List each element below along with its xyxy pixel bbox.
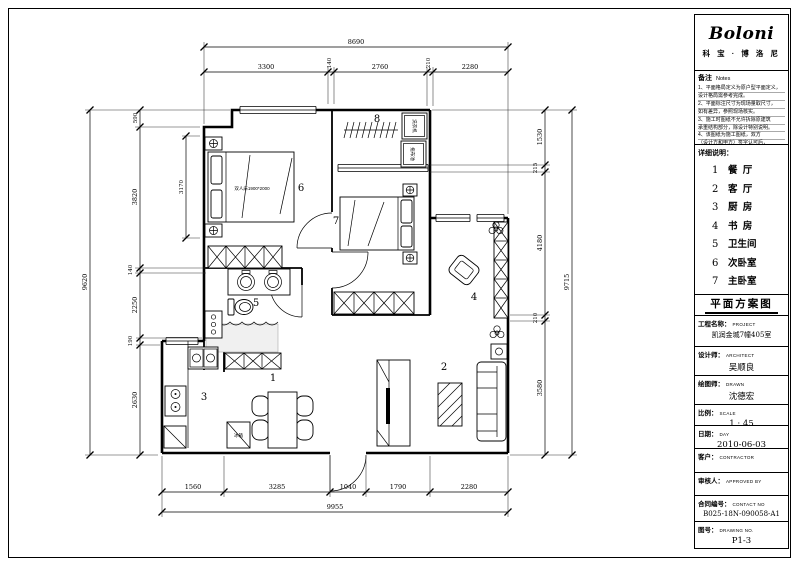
room-num-dining: 1 <box>270 373 276 384</box>
svg-text:3820: 3820 <box>131 189 139 206</box>
svg-text:4180: 4180 <box>536 235 544 252</box>
boloni-logo-chinese: 科 宝 · 博 洛 尼 <box>698 48 785 59</box>
note-line: 设计格局需参考完成。 <box>698 93 785 101</box>
scale-value: 1 : 45 <box>698 419 785 426</box>
legend-item: 7主卧室 <box>712 273 785 287</box>
contract-field: 合同编号：CONTACT NO B025-18N-090058-A1 <box>695 496 788 522</box>
room-num-bedroom1: 7 <box>333 216 339 227</box>
svg-text:2280: 2280 <box>461 483 478 491</box>
balcony-furniture: 洗衣机 拖布池 <box>344 113 427 167</box>
dining-furniture <box>252 392 313 448</box>
svg-text:590: 590 <box>133 112 139 123</box>
legend-item: 2客 厅 <box>712 181 785 195</box>
room-num-living: 2 <box>441 362 447 373</box>
room-num-bath: 5 <box>253 298 259 309</box>
dim-inner: 3170 <box>179 180 185 194</box>
legend-item: 4书 房 <box>712 218 785 232</box>
svg-text:1790: 1790 <box>390 483 407 491</box>
architect-field: 设计师：ARCHITECT 吴顺良 <box>695 347 788 376</box>
svg-text:3300: 3300 <box>258 63 275 71</box>
logo-section: Boloni 科 宝 · 博 洛 尼 <box>695 15 788 71</box>
drawing-title: 平面方案图 <box>705 296 778 314</box>
svg-text:3285: 3285 <box>269 483 286 491</box>
doors <box>270 213 368 491</box>
plant-living <box>490 326 504 338</box>
legend-section: 详细说明： 1餐 厅 2客 厅 3厨 房 4书 房 5卫生间 6次卧室 7主卧室… <box>695 145 788 295</box>
bed-size-label: 双人床1900*2000 <box>234 185 270 192</box>
washer-label: 洗衣机 <box>411 119 418 133</box>
sofa <box>477 362 506 441</box>
svg-text:215: 215 <box>533 162 539 173</box>
tv <box>386 388 390 424</box>
legend-item: 6次卧室 <box>712 255 785 269</box>
drawing-no-value: P1-3 <box>698 536 785 546</box>
title-block-panel: Boloni 科 宝 · 博 洛 尼 备注Notes 1、平面格局定义为原户型平… <box>694 14 789 549</box>
fridge-label: 冰箱 <box>234 432 243 439</box>
legend-item: 1餐 厅 <box>712 162 785 176</box>
svg-text:3580: 3580 <box>536 380 544 397</box>
notes-title-en: Notes <box>716 76 730 82</box>
legend-title: 详细说明： <box>698 148 785 158</box>
living-furniture <box>377 326 507 446</box>
dim-right-total: 9715 <box>563 274 571 291</box>
room-num-bedroom2: 6 <box>298 183 304 194</box>
approved-field: 审核人：APPROVED BY <box>695 473 788 496</box>
svg-text:210: 210 <box>533 312 539 323</box>
drawn-value: 沈德宏 <box>698 390 785 402</box>
dim-bottom-total: 9955 <box>327 503 344 511</box>
floorplan-drawing: 双人床1900*2000 洗衣机 <box>8 8 692 558</box>
drawing-title-section: 平面方案图 <box>695 295 788 316</box>
tv-cabinet <box>377 360 410 446</box>
svg-text:2760: 2760 <box>372 63 389 71</box>
drawn-field: 绘图师：DRAWN 沈德宏 <box>695 376 788 405</box>
svg-text:2630: 2630 <box>131 392 139 409</box>
dim-top-total: 8690 <box>348 38 365 46</box>
svg-text:140: 140 <box>128 264 134 275</box>
svg-text:140: 140 <box>327 57 333 68</box>
study-furniture <box>447 222 508 318</box>
date-field: 日期：DAY 2010-06-03 <box>695 426 788 449</box>
room-num-balcony: 8 <box>374 114 380 125</box>
notes-section: 备注Notes 1、平面格局定义为原户型平面定义， 设计格局需参考完成。 2、平… <box>695 71 788 145</box>
client-field: 客户：CONTRACTOR <box>695 449 788 473</box>
bedroom6-furniture: 双人床1900*2000 <box>205 137 294 268</box>
note-line: 如有差异，参照现场核实。 <box>698 109 785 117</box>
legend-item: 5卫生间 <box>712 236 785 250</box>
project-value: 凯润金城7幢405室 <box>698 330 785 340</box>
project-field: 工程名称：PROJECT 凯润金城7幢405室 <box>695 316 788 347</box>
contract-value: B025-18N-090058-A1 <box>698 510 785 518</box>
note-line: 3、施工时图纸不允许拆除原建筑 <box>698 117 785 125</box>
note-line: 2、平面标注尺寸为现场量取尺寸， <box>698 101 785 109</box>
svg-text:2280: 2280 <box>462 63 479 71</box>
date-value: 2010-06-03 <box>698 440 785 449</box>
drawing-no-field: 图号：DRAWING NO. P1-3 <box>695 522 788 548</box>
room-num-kitchen: 3 <box>201 392 207 403</box>
svg-text:190: 190 <box>128 335 134 346</box>
bedroom7-furniture <box>334 184 417 314</box>
room-num-study: 4 <box>471 292 477 303</box>
svg-text:2250: 2250 <box>131 297 139 314</box>
notes-title: 备注 <box>698 75 712 82</box>
dim-left-total: 9620 <box>81 274 89 291</box>
scale-field: 比例：SCALE 1 : 45 <box>695 405 788 426</box>
mop-label: 拖布池 <box>409 147 416 161</box>
svg-text:210: 210 <box>426 57 432 68</box>
legend-item: 3厨 房 <box>712 199 785 213</box>
svg-text:1040: 1040 <box>340 483 357 491</box>
drawing-sheet: 双人床1900*2000 洗衣机 <box>0 0 800 566</box>
note-line: 1、平面格局定义为原户型平面定义， <box>698 85 785 93</box>
drying-rack <box>344 122 396 138</box>
svg-text:1560: 1560 <box>185 483 202 491</box>
boloni-logo: Boloni <box>698 24 785 44</box>
svg-text:1530: 1530 <box>536 129 544 146</box>
architect-value: 吴顺良 <box>698 361 785 373</box>
